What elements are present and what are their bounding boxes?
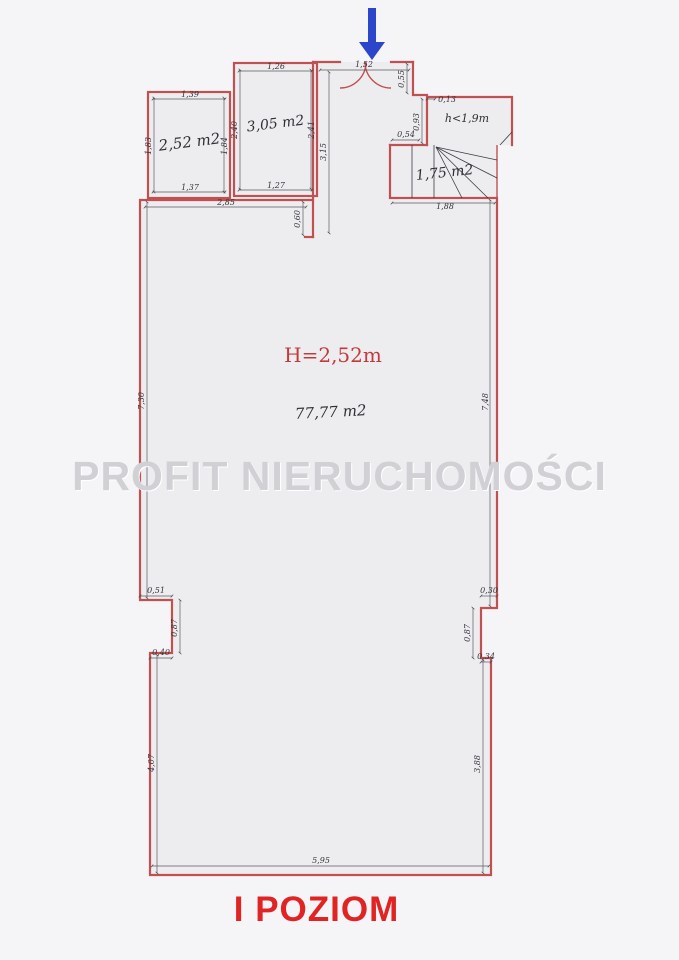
dim-notch-right-w2: 0,34: [477, 652, 495, 661]
dim-main-left: 7,30: [137, 392, 146, 410]
dim-room1-top: 1,39: [181, 90, 199, 99]
dim-room1-right: 1,84: [220, 137, 229, 155]
dim-notch-right-h: 0,87: [463, 623, 472, 642]
main-room-height-label: H=2,52m: [284, 343, 382, 367]
dim-main-bottom-left: 4,07: [147, 753, 156, 773]
entrance-arrow-icon: [359, 8, 385, 60]
dim-main-stub: 0,60: [293, 210, 302, 228]
dim-attic-offset: 0,13: [438, 95, 456, 104]
dim-notch-right-w: 0,30: [480, 586, 498, 595]
dim-main-bottom: 5,95: [312, 856, 330, 865]
dim-attic-left: 0,93: [412, 113, 421, 131]
plan-title: I POZIOM: [234, 890, 400, 930]
dim-entrance-width: 1,52: [355, 60, 373, 69]
dim-stairs-bottom: 1,88: [436, 202, 454, 211]
dim-main-right: 7,48: [481, 393, 490, 411]
main-room-area-label: 77,77 m2: [295, 401, 367, 423]
dim-room1-bottom: 1,37: [181, 183, 200, 192]
dim-notch-left-w2: 0,40: [152, 648, 170, 657]
dim-main-bottom-right: 3,88: [473, 755, 482, 773]
dim-entrance-side: 0,55: [397, 70, 406, 88]
dim-room1-left: 1,83: [144, 137, 153, 155]
entrance-right-wall: [413, 62, 427, 95]
dim-room2-top: 1,26: [267, 62, 285, 71]
floor-plan-page: 1,52 0,55 3,15 0,13 0,93 0,54 1,88 1,39 …: [0, 0, 679, 960]
dim-notch-left-h: 0,87: [170, 618, 179, 637]
dim-notch-left-w: 0,51: [147, 586, 165, 595]
attic-height-label: h<1,9m: [445, 112, 489, 125]
dim-corridor-height: 3,15: [319, 143, 328, 161]
watermark-text: PROFIT NIERUCHOMOŚCI: [0, 453, 679, 500]
dim-room2-left: 2,40: [230, 121, 239, 140]
main-room-floor: [140, 200, 497, 875]
dim-room2-right: 2,41: [307, 121, 316, 140]
dim-main-top: 2,85: [216, 198, 235, 207]
dim-room2-bottom: 1,27: [267, 181, 286, 190]
dim-stairs-top: 0,54: [397, 130, 415, 139]
